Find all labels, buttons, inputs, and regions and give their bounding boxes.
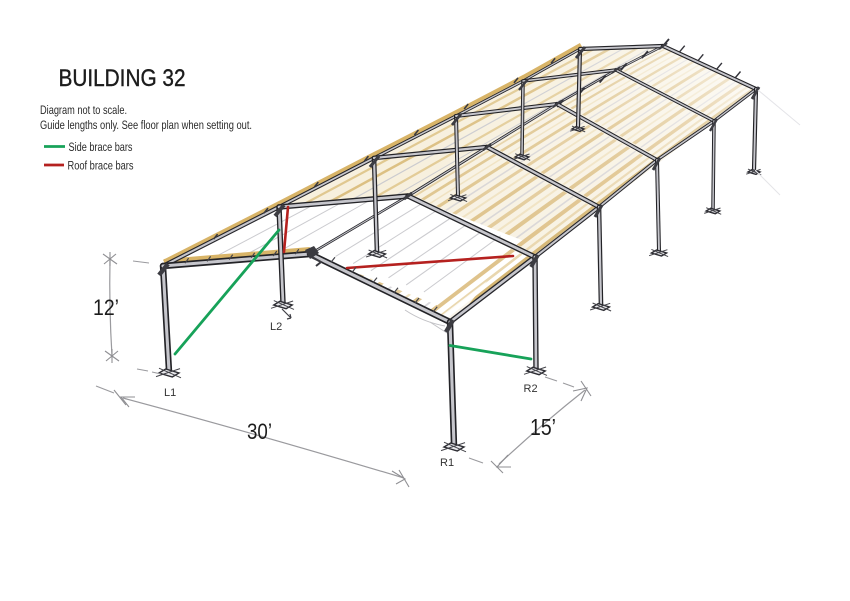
svg-text:R1: R1 [440, 457, 454, 469]
svg-text:L1: L1 [164, 387, 176, 399]
svg-text:BUILDING 32: BUILDING 32 [59, 65, 186, 92]
svg-text:Guide lengths only. See floor: Guide lengths only. See floor plan when … [40, 118, 252, 132]
svg-text:30’: 30’ [247, 419, 272, 444]
svg-text:Diagram not to scale.: Diagram not to scale. [40, 103, 127, 117]
svg-text:Roof brace bars: Roof brace bars [68, 159, 134, 173]
svg-text:L2: L2 [270, 321, 282, 333]
svg-text:R2: R2 [524, 383, 538, 395]
svg-text:12’: 12’ [93, 295, 119, 320]
svg-text:15’: 15’ [530, 414, 556, 440]
svg-text:Side brace bars: Side brace bars [69, 140, 133, 154]
